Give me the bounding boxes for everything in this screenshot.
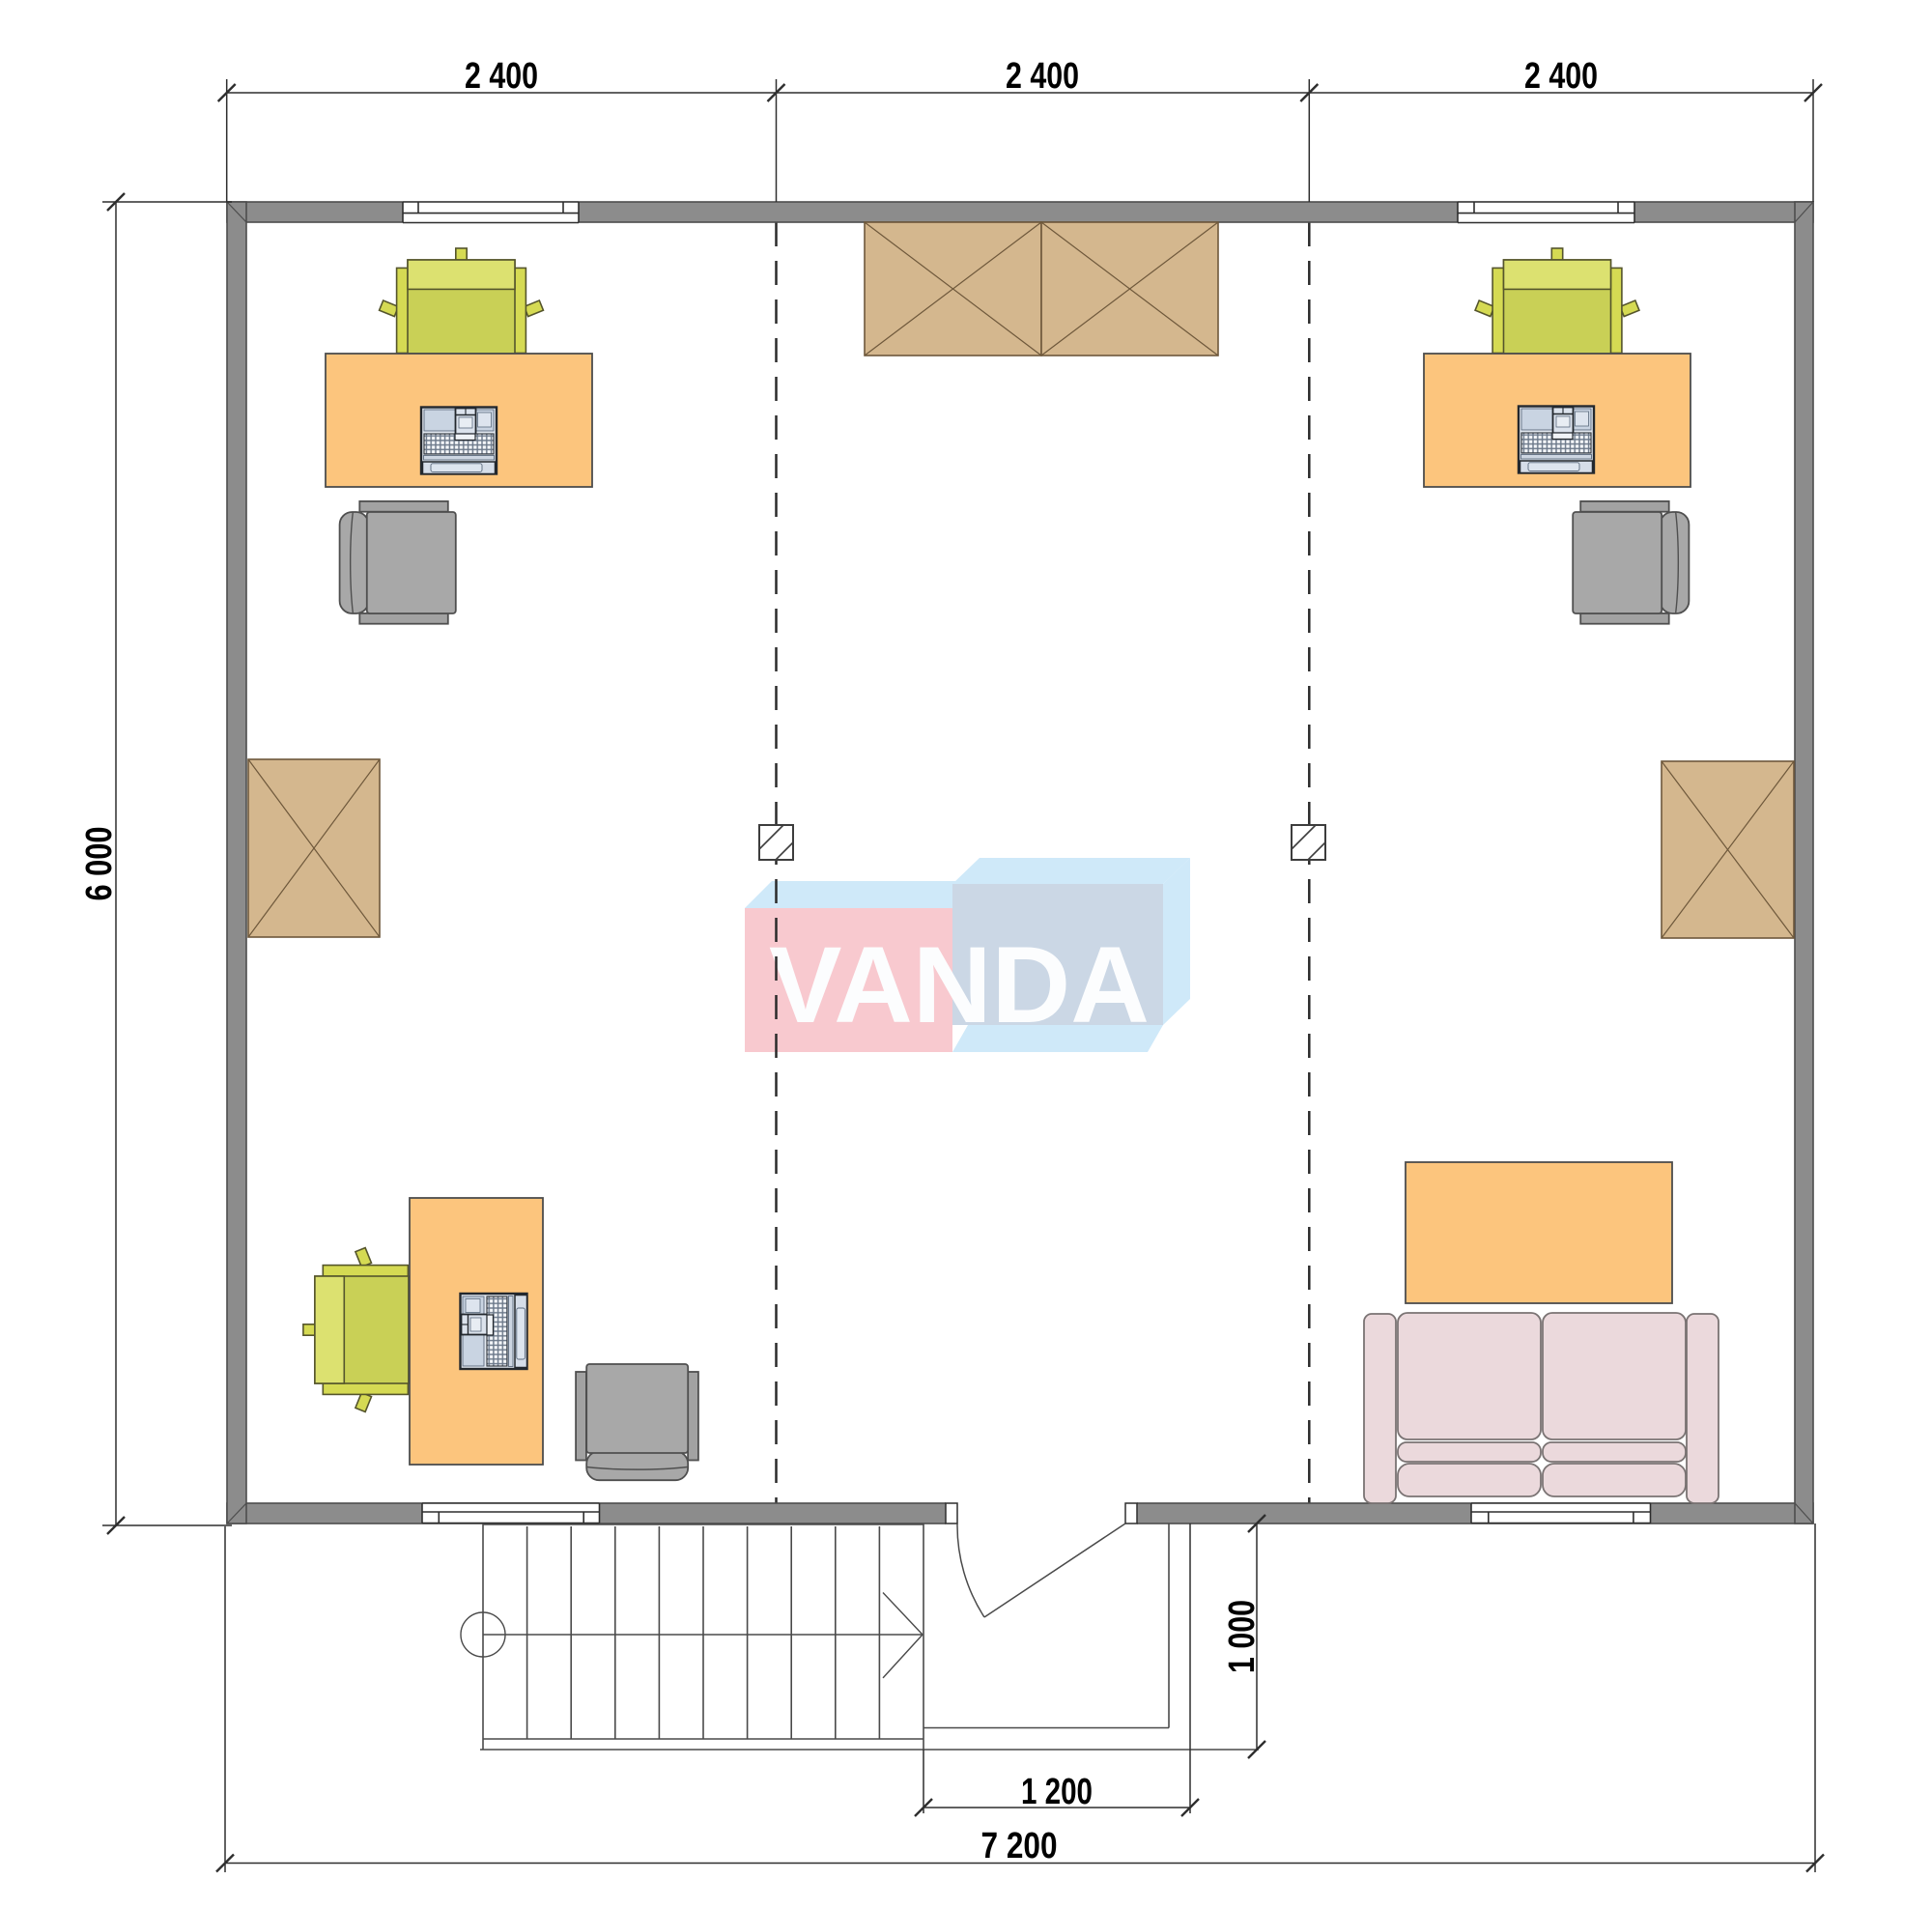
svg-text:1 200: 1 200 — [1021, 1772, 1093, 1812]
svg-text:2 400: 2 400 — [1006, 56, 1079, 97]
svg-text:2 400: 2 400 — [1524, 56, 1598, 97]
svg-text:1 000: 1 000 — [1222, 1600, 1263, 1673]
svg-text:2 400: 2 400 — [465, 56, 538, 97]
svg-text:6 000: 6 000 — [79, 827, 120, 901]
svg-text:7 200: 7 200 — [981, 1826, 1058, 1866]
svg-text:VANDA: VANDA — [769, 925, 1150, 1045]
